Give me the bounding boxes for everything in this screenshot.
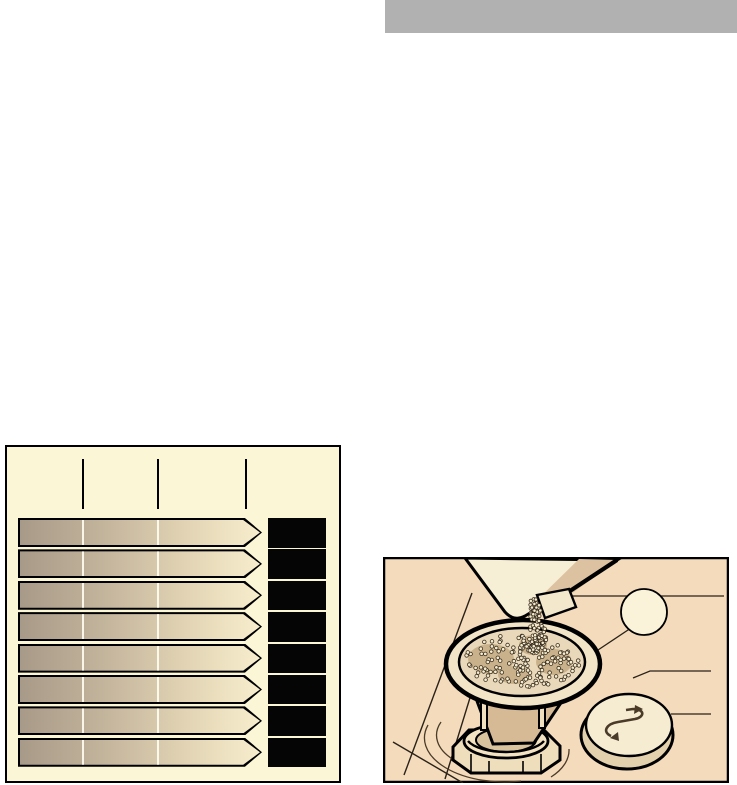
arrow-bar-gradient (20, 646, 260, 671)
setting-value-box (268, 738, 326, 768)
setting-value-box (268, 612, 326, 642)
hardness-rows (18, 518, 338, 769)
bar-divider (82, 583, 84, 608)
bar-divider (157, 708, 159, 733)
bar-divider (157, 520, 159, 545)
table-row (18, 738, 338, 767)
setting-value-box (268, 518, 326, 548)
setting-value-box (268, 581, 326, 611)
arrow-bar-gradient (20, 583, 260, 608)
bar-divider (82, 646, 84, 671)
hardness-arrow-bar (18, 644, 262, 673)
bar-divider (82, 677, 84, 702)
arrow-bar-gradient (20, 740, 260, 765)
arrow-bar-gradient (20, 520, 260, 545)
arrow-bar-gradient (20, 614, 260, 639)
hardness-arrow-bar (18, 706, 262, 735)
arrow-bar-gradient (20, 677, 260, 702)
bar-divider (157, 583, 159, 608)
hardness-arrow-bar (18, 612, 262, 641)
bar-divider (157, 646, 159, 671)
tick-mark (157, 459, 159, 509)
hardness-arrow-bar (18, 518, 262, 547)
bar-divider (157, 677, 159, 702)
bar-divider (157, 614, 159, 639)
arrow-bar-gradient (20, 551, 260, 576)
header-bar (385, 0, 737, 33)
hardness-arrow-bar (18, 549, 262, 578)
hardness-arrow-bar (18, 581, 262, 610)
tick-mark (82, 459, 84, 509)
salt-filling-illustration (383, 557, 729, 783)
bar-divider (157, 740, 159, 765)
setting-value-box (268, 644, 326, 674)
table-row (18, 581, 338, 610)
setting-value-box (268, 549, 326, 579)
table-row (18, 612, 338, 641)
table-row (18, 549, 338, 578)
column-tick-marks (7, 447, 339, 509)
table-row (18, 518, 338, 547)
water-hardness-table (5, 445, 341, 783)
table-row (18, 644, 338, 673)
bar-divider (82, 551, 84, 576)
bar-divider (82, 520, 84, 545)
bar-divider (157, 551, 159, 576)
hardness-arrow-bar (18, 738, 262, 767)
hardness-arrow-bar (18, 675, 262, 704)
bar-divider (82, 740, 84, 765)
table-row (18, 706, 338, 735)
setting-value-box (268, 706, 326, 736)
bar-divider (82, 614, 84, 639)
tick-mark (245, 459, 247, 509)
screw-cap (581, 694, 673, 769)
arrow-bar-gradient (20, 708, 260, 733)
setting-value-box (268, 675, 326, 705)
bar-divider (82, 708, 84, 733)
table-row (18, 675, 338, 704)
